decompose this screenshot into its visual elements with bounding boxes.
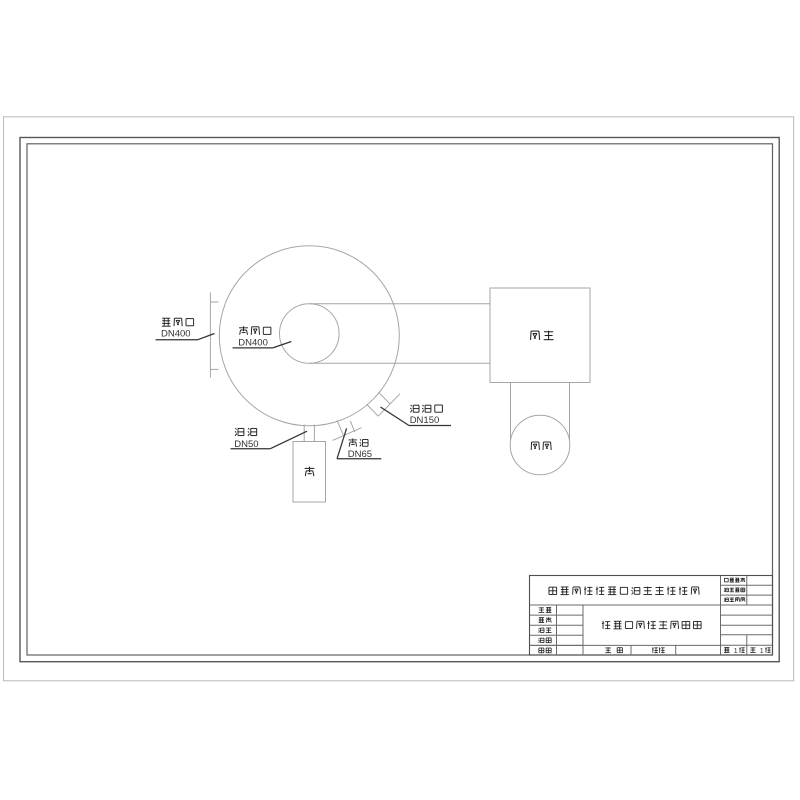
svg-text:DN400: DN400 [161, 328, 191, 339]
svg-text:1: 1 [760, 648, 764, 655]
svg-text:DN50: DN50 [234, 439, 258, 450]
svg-text:DN400: DN400 [238, 337, 268, 348]
svg-text:1: 1 [734, 648, 738, 655]
svg-text:DN65: DN65 [348, 449, 372, 460]
svg-text:DN150: DN150 [410, 415, 440, 426]
